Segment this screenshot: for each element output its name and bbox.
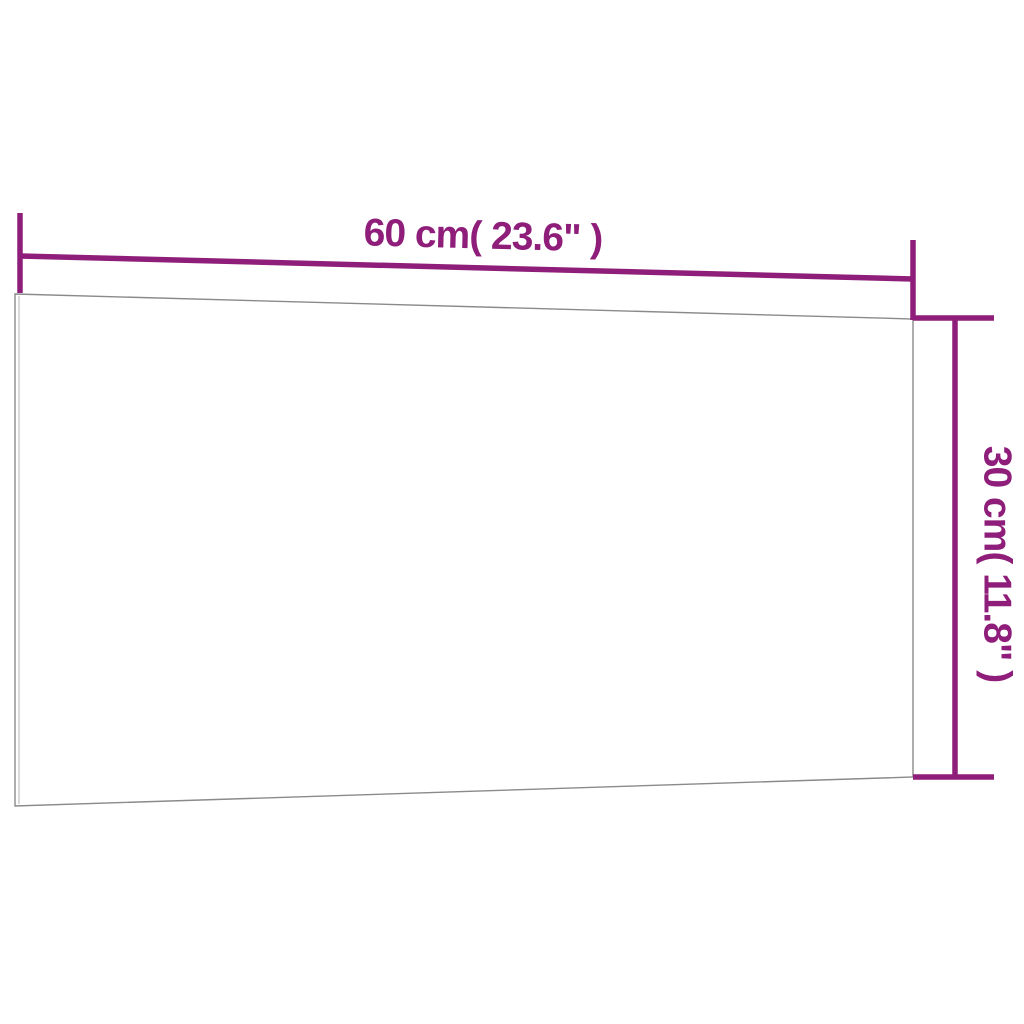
width-dimension-line xyxy=(20,256,913,279)
diagram-canvas xyxy=(0,0,1024,1024)
height-dimension-label: 30 cm( 11.8" ) xyxy=(978,446,1017,682)
dimension-diagram: 60 cm( 23.6" ) 30 cm( 11.8" ) xyxy=(0,0,1024,1024)
board-panel xyxy=(15,294,913,806)
width-dimension-label: 60 cm( 23.6" ) xyxy=(363,213,603,258)
